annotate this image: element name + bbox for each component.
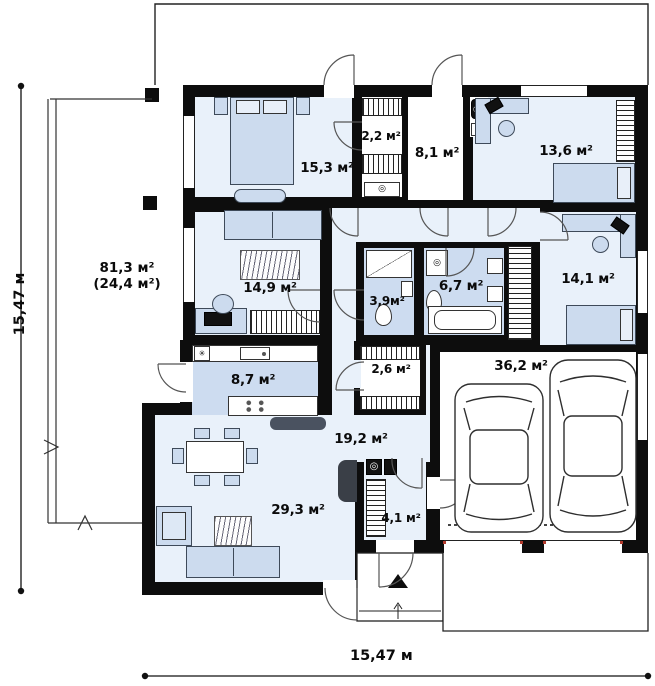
area-label-hallway: 19,2 м² (334, 431, 388, 447)
area-label-bathroom: 6,7 м² (439, 278, 483, 294)
driveway-outline (443, 553, 648, 631)
area-label-closet: 2,6 м² (371, 362, 410, 376)
dimension-line-bottom (142, 673, 651, 679)
area-label-bedroom-master: 15,3 м² (300, 160, 354, 176)
terrace-outline (44, 99, 152, 530)
terrace-area-line1: 81,3 м² (93, 260, 160, 276)
roof-outline (155, 4, 648, 85)
area-label-hall-boiler: 8,1 м² (415, 145, 459, 161)
area-label-bedroom-top-right: 13,6 м² (539, 143, 593, 159)
floor-plan: ◎ ○○ ∘ ◎ ✳ (0, 0, 655, 686)
terrace-area-label: 81,3 м² (24,4 м²) (93, 260, 160, 292)
area-label-kitchen: 8,7 м² (231, 372, 275, 388)
area-label-family-room: 14,9 м² (243, 280, 297, 296)
car-1 (455, 384, 543, 532)
area-label-garage: 36,2 м² (494, 358, 548, 374)
area-label-living-room: 29,3 м² (271, 502, 325, 518)
area-label-walk-in-closet: 2,2 м² (361, 129, 400, 143)
area-label-vestibule: 4,1 м² (381, 511, 420, 525)
terrace-area-line2: (24,4 м²) (93, 276, 160, 292)
area-label-shower-room: 3,9м² (369, 294, 404, 308)
dimension-label-left: 15,47 м (12, 259, 30, 349)
car-2 (550, 360, 636, 532)
plan-linework (0, 0, 655, 686)
area-label-bedroom-right: 14,1 м² (561, 271, 615, 287)
dimension-label-bottom: 15,47 м (350, 648, 413, 664)
